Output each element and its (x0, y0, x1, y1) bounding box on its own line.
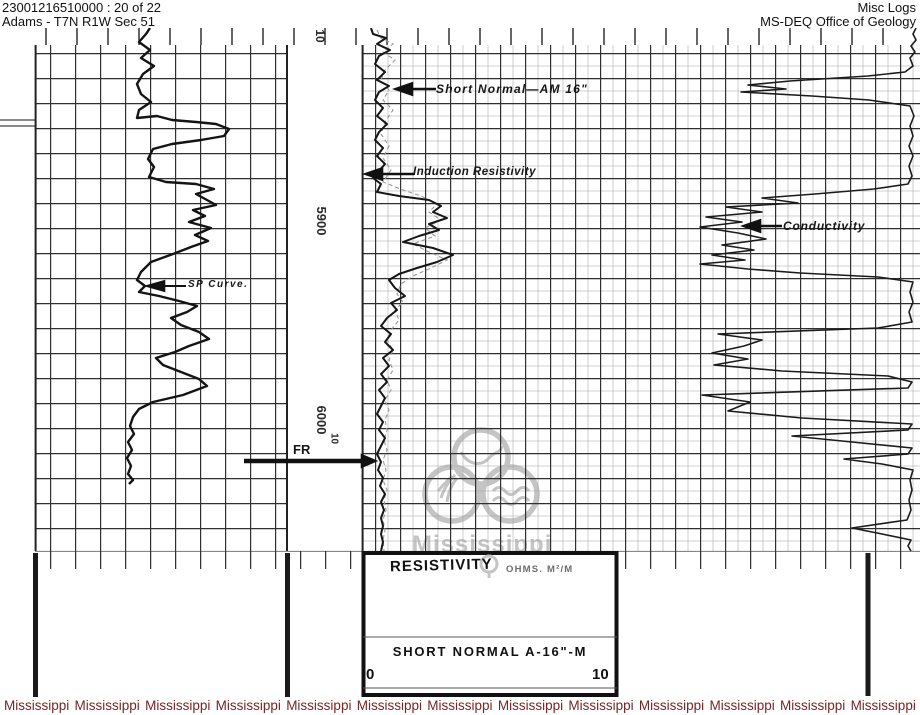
footer-watermark-word: Mississippi (780, 699, 845, 713)
footer-watermark-word: Mississippi (709, 699, 774, 713)
footer-watermark-word: Mississippi (145, 699, 210, 713)
footer-watermark-word: Mississippi (851, 699, 916, 713)
legend-title: RESISTIVITY (390, 556, 493, 576)
legend-units: OHMS. M²/M (506, 564, 573, 575)
margin-lines (0, 120, 35, 126)
app-title: Misc Logs (857, 1, 916, 15)
footer-watermark-word: Mississippi (639, 699, 704, 713)
legend-curve-name: SHORT NORMAL A-16"-M (363, 644, 617, 659)
well-location: Adams - T7N R1W Sec 51 (2, 15, 155, 29)
fr-marker-label: FR (293, 442, 310, 457)
top-tick-row (35, 28, 895, 45)
left-box-verticals (36, 553, 288, 698)
fr-scale-label: 10 (327, 428, 340, 450)
resistivity-track-grid (362, 45, 920, 551)
depth-label-5900: 5900 (315, 201, 329, 241)
depth-label-top: 10 (313, 22, 327, 50)
sp-curve-annotation: SP Curve. (188, 279, 248, 290)
footer-watermark-word: Mississippi (75, 699, 140, 713)
footer-watermark-word: Mississippi (4, 699, 69, 713)
footer-watermark-word: Mississippi (357, 699, 422, 713)
well-log-scan (0, 28, 920, 715)
short-normal-annotation: Short Normal—AM 16" (436, 82, 588, 96)
footer-watermark-word: Mississippi (216, 699, 281, 713)
footer-watermark-row: Mississippi Mississippi Mississippi Miss… (0, 697, 920, 715)
footer-watermark-word: Mississippi (427, 699, 492, 713)
legend-scale-max: 10 (592, 666, 609, 683)
document-id: 23001216510000 : 20 of 22 (2, 1, 161, 15)
conductivity-annotation: Conductivity (783, 219, 865, 233)
footer-watermark-word: Mississippi (498, 699, 563, 713)
org-name: MS-DEQ Office of Geology (760, 15, 916, 29)
footer-watermark-word: Mississippi (568, 699, 633, 713)
induction-annotation: Induction Resistivity (413, 166, 536, 178)
sp-track-grid (35, 45, 287, 551)
legend-scale-min: 0 (366, 666, 374, 683)
footer-watermark-word: Mississippi (286, 699, 351, 713)
